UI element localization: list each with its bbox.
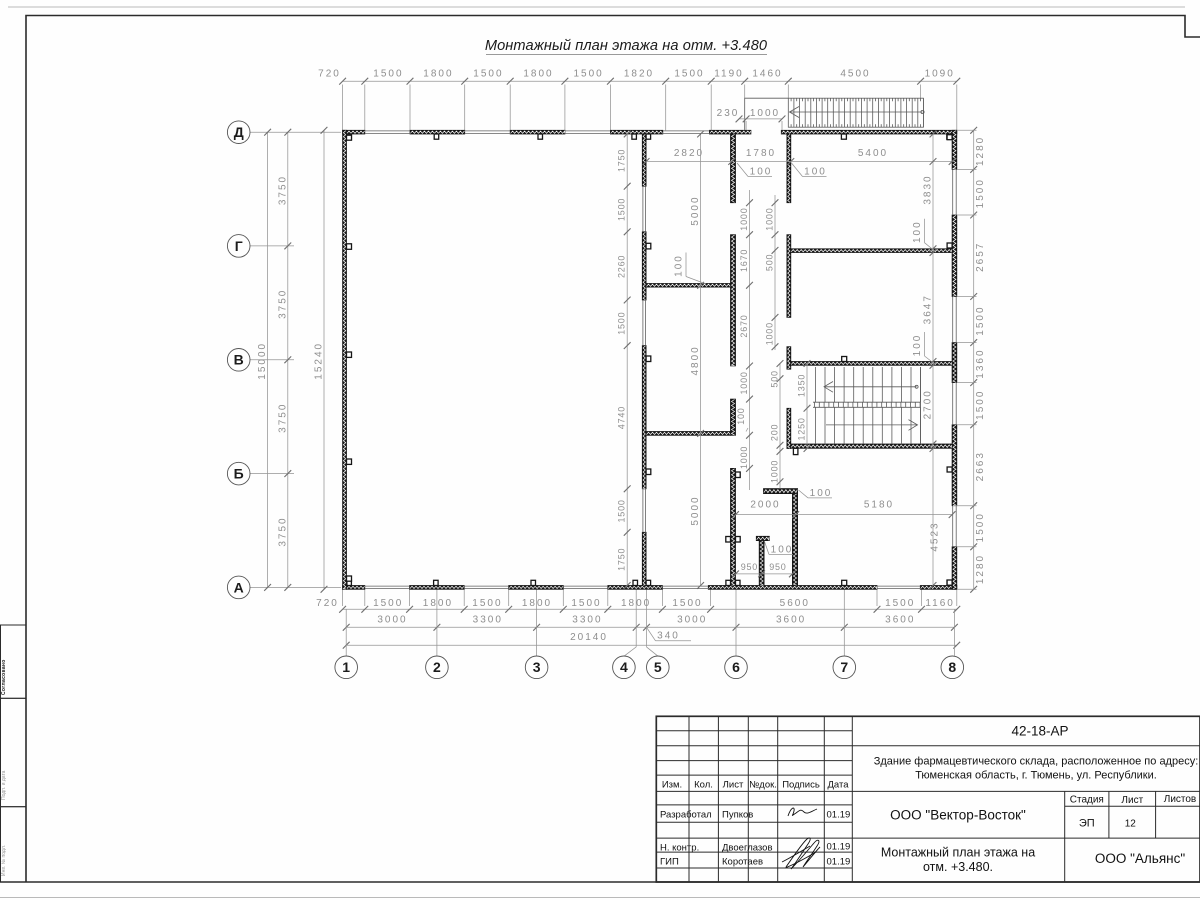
svg-text:1000: 1000 — [739, 207, 749, 230]
svg-text:ООО "Альянс": ООО "Альянс" — [1095, 851, 1185, 866]
svg-text:15000: 15000 — [257, 342, 268, 380]
svg-text:Коротаев: Коротаев — [722, 857, 763, 868]
svg-text:200: 200 — [770, 424, 780, 441]
svg-text:01.19: 01.19 — [827, 857, 851, 868]
svg-text:100: 100 — [736, 407, 746, 424]
svg-text:3000: 3000 — [377, 615, 407, 626]
svg-text:1780: 1780 — [746, 148, 776, 159]
svg-text:1500: 1500 — [473, 69, 503, 80]
svg-text:340: 340 — [657, 630, 680, 641]
svg-text:42-18-АР: 42-18-АР — [1011, 724, 1068, 739]
svg-text:1500: 1500 — [975, 305, 986, 335]
svg-text:3647: 3647 — [923, 294, 934, 324]
svg-text:3750: 3750 — [277, 175, 288, 205]
svg-text:3750: 3750 — [277, 403, 288, 433]
svg-text:3600: 3600 — [885, 615, 915, 626]
svg-text:1500: 1500 — [373, 598, 403, 609]
svg-text:Д: Д — [234, 124, 244, 140]
svg-text:1500: 1500 — [975, 390, 986, 420]
svg-text:100: 100 — [771, 545, 794, 556]
svg-text:720: 720 — [316, 598, 339, 609]
svg-text:1750: 1750 — [617, 149, 627, 172]
svg-text:1500: 1500 — [672, 598, 702, 609]
svg-text:1500: 1500 — [885, 598, 915, 609]
svg-text:Лист: Лист — [723, 780, 744, 791]
svg-text:4500: 4500 — [840, 69, 870, 80]
svg-text:1000: 1000 — [765, 322, 775, 345]
svg-text:1800: 1800 — [522, 598, 552, 609]
svg-text:4: 4 — [620, 659, 628, 675]
svg-text:12: 12 — [1125, 819, 1137, 830]
svg-text:1800: 1800 — [523, 69, 553, 80]
svg-text:1460: 1460 — [752, 69, 782, 80]
svg-text:6: 6 — [732, 659, 740, 675]
svg-text:2000: 2000 — [750, 500, 780, 511]
svg-text:1500: 1500 — [571, 598, 601, 609]
svg-text:100: 100 — [810, 488, 833, 499]
svg-text:Лист: Лист — [1121, 795, 1143, 806]
svg-text:2: 2 — [433, 659, 441, 675]
svg-text:Здание фармацевтического склад: Здание фармацевтического склада, располо… — [874, 756, 1199, 768]
svg-text:1750: 1750 — [617, 548, 627, 571]
svg-text:3750: 3750 — [277, 289, 288, 319]
svg-text:3750: 3750 — [277, 516, 288, 546]
svg-text:01.19: 01.19 — [827, 810, 851, 821]
svg-text:2260: 2260 — [617, 255, 627, 278]
svg-text:1160: 1160 — [925, 598, 955, 609]
svg-text:2663: 2663 — [975, 451, 986, 481]
svg-text:1000: 1000 — [770, 460, 780, 483]
svg-text:Листов: Листов — [1164, 794, 1197, 805]
svg-text:4523: 4523 — [930, 521, 941, 551]
svg-text:1360: 1360 — [975, 348, 986, 378]
svg-text:1500: 1500 — [573, 69, 603, 80]
svg-text:Стадия: Стадия — [1070, 794, 1104, 805]
svg-text:1090: 1090 — [925, 69, 955, 80]
svg-text:5400: 5400 — [858, 148, 888, 159]
svg-text:1190: 1190 — [714, 69, 744, 80]
svg-text:5600: 5600 — [780, 598, 810, 609]
svg-text:1000: 1000 — [739, 371, 749, 394]
svg-text:1: 1 — [342, 659, 350, 675]
svg-text:5: 5 — [654, 659, 662, 675]
svg-text:2657: 2657 — [975, 242, 986, 272]
svg-text:Согласовано: Согласовано — [1, 659, 7, 695]
svg-text:1500: 1500 — [617, 499, 627, 522]
svg-text:3: 3 — [533, 659, 541, 675]
svg-text:Изм.: Изм. — [662, 780, 682, 791]
svg-text:2700: 2700 — [923, 389, 934, 419]
svg-text:100: 100 — [750, 167, 773, 178]
svg-text:1670: 1670 — [739, 249, 749, 272]
svg-text:1500: 1500 — [617, 198, 627, 221]
svg-text:1500: 1500 — [975, 178, 986, 208]
svg-text:2670: 2670 — [739, 314, 749, 337]
svg-text:500: 500 — [770, 370, 780, 387]
svg-text:Б: Б — [234, 466, 244, 482]
svg-text:Дата: Дата — [827, 780, 849, 791]
svg-text:1820: 1820 — [624, 69, 654, 80]
svg-text:ГИП: ГИП — [660, 857, 679, 868]
svg-text:1250: 1250 — [797, 417, 807, 440]
svg-text:100: 100 — [674, 254, 685, 277]
svg-text:3830: 3830 — [923, 174, 934, 204]
svg-text:1350: 1350 — [797, 374, 807, 397]
svg-text:Пупков: Пупков — [722, 810, 753, 821]
svg-text:ЭП: ЭП — [1079, 818, 1095, 830]
svg-text:Подпись: Подпись — [782, 780, 820, 791]
svg-text:В: В — [234, 352, 244, 368]
svg-text:20140: 20140 — [570, 632, 608, 643]
svg-text:950: 950 — [741, 562, 758, 572]
svg-text:1500: 1500 — [472, 598, 502, 609]
svg-text:Кол.: Кол. — [694, 780, 713, 791]
svg-text:Тюменская область, г. Тюмень,: Тюменская область, г. Тюмень, ул. Респуб… — [915, 770, 1157, 782]
svg-text:7: 7 — [840, 659, 848, 675]
svg-text:5000: 5000 — [690, 195, 701, 225]
svg-text:Подп. и дата: Подп. и дата — [1, 770, 7, 800]
svg-text:Монтажный план этажа на отм. +: Монтажный план этажа на отм. +3.480 — [485, 38, 767, 54]
svg-text:3000: 3000 — [677, 615, 707, 626]
svg-text:8: 8 — [948, 659, 956, 675]
svg-text:4800: 4800 — [690, 345, 701, 375]
svg-text:Двоеглазов: Двоеглазов — [722, 843, 773, 854]
svg-text:№док.: №док. — [749, 780, 777, 791]
svg-text:1000: 1000 — [739, 446, 749, 469]
svg-text:1500: 1500 — [617, 312, 627, 335]
svg-text:3300: 3300 — [572, 615, 602, 626]
svg-text:500: 500 — [765, 254, 775, 271]
svg-text:1280: 1280 — [975, 136, 986, 166]
svg-text:1500: 1500 — [975, 512, 986, 542]
svg-text:01.19: 01.19 — [827, 842, 851, 853]
svg-text:Инв. № подл.: Инв. № подл. — [1, 845, 7, 876]
svg-text:5000: 5000 — [690, 495, 701, 525]
svg-text:1000: 1000 — [750, 108, 780, 119]
svg-text:2820: 2820 — [674, 148, 704, 159]
svg-text:Н. контр.: Н. контр. — [660, 843, 699, 854]
svg-text:1500: 1500 — [373, 69, 403, 80]
svg-text:720: 720 — [318, 69, 341, 80]
svg-text:1800: 1800 — [423, 598, 453, 609]
svg-text:3600: 3600 — [776, 615, 806, 626]
svg-text:1500: 1500 — [674, 69, 704, 80]
svg-text:950: 950 — [769, 562, 786, 572]
svg-text:1800: 1800 — [423, 69, 453, 80]
svg-text:15240: 15240 — [314, 342, 325, 380]
svg-text:4740: 4740 — [617, 406, 627, 429]
svg-text:3300: 3300 — [473, 615, 503, 626]
svg-text:Г: Г — [235, 238, 243, 254]
svg-text:отм. +3.480.: отм. +3.480. — [923, 860, 993, 874]
svg-text:Разработал: Разработал — [660, 810, 712, 821]
svg-text:100: 100 — [912, 220, 923, 243]
svg-text:5180: 5180 — [864, 500, 894, 511]
svg-text:ООО "Вектор-Восток": ООО "Вектор-Восток" — [890, 808, 1026, 823]
svg-text:А: А — [234, 579, 244, 595]
svg-text:1000: 1000 — [765, 207, 775, 230]
svg-text:100: 100 — [804, 167, 827, 178]
svg-text:100: 100 — [912, 334, 923, 357]
svg-text:230: 230 — [717, 108, 740, 119]
svg-text:1280: 1280 — [975, 554, 986, 584]
svg-text:Монтажный план этажа на: Монтажный план этажа на — [881, 846, 1035, 860]
